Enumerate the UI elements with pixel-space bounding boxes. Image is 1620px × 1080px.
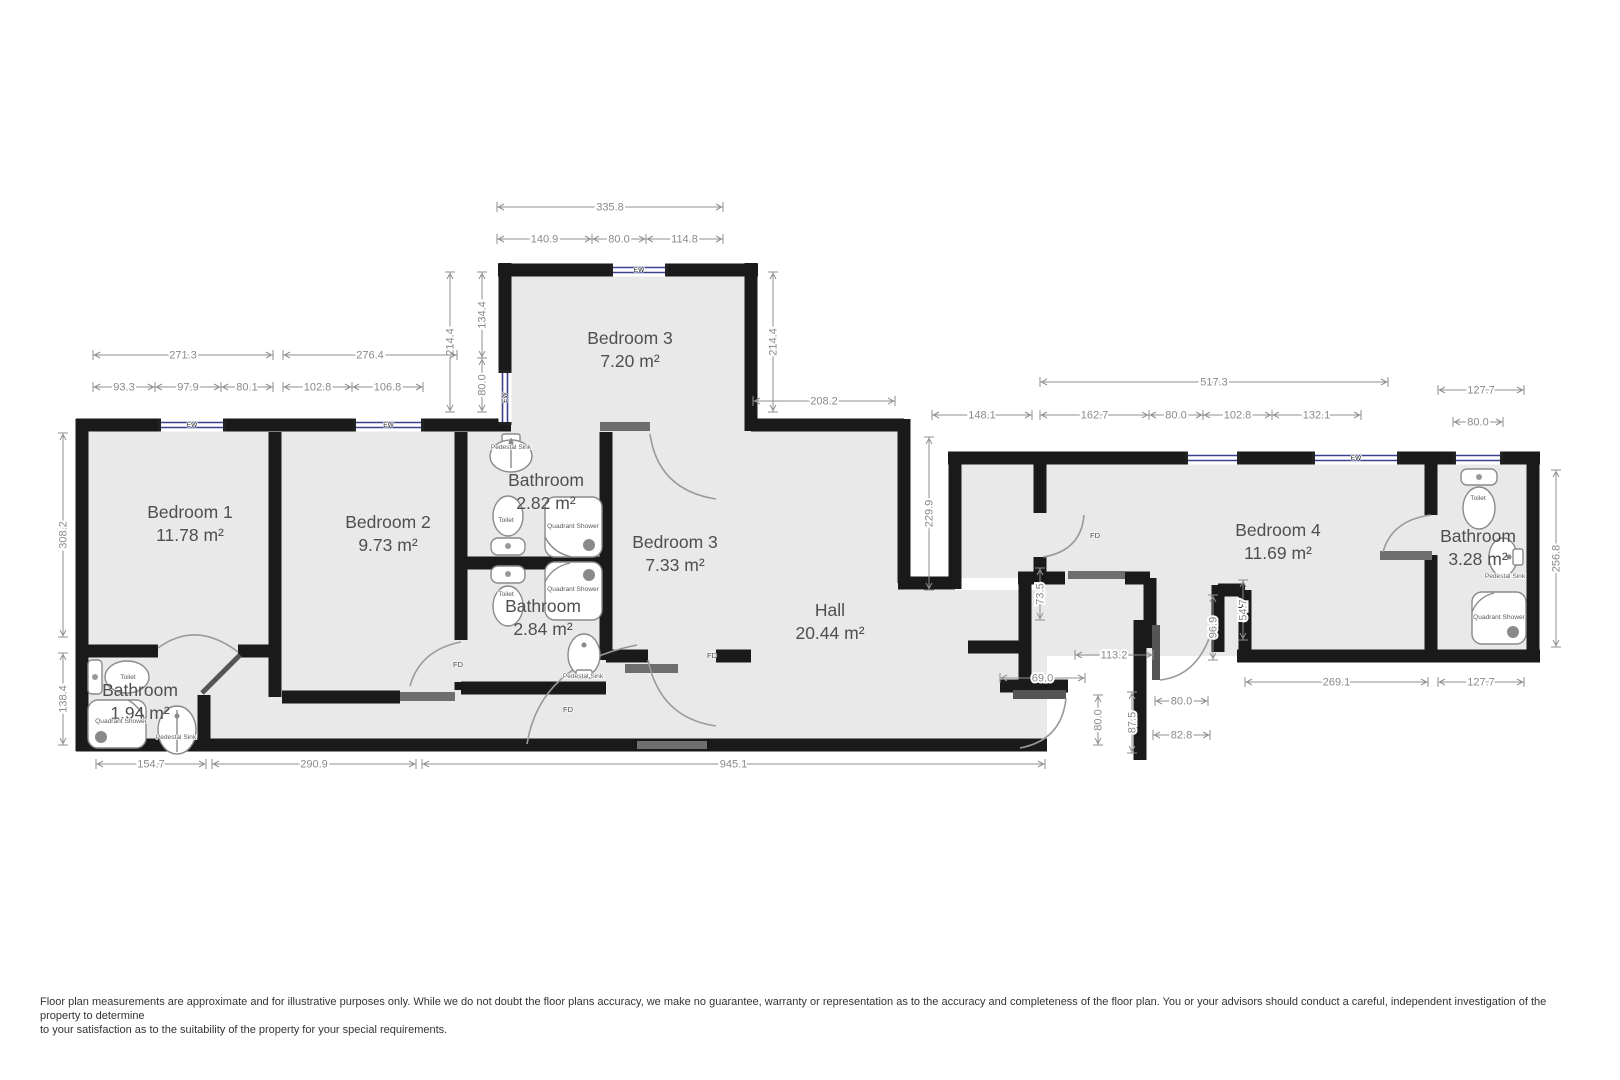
dimension-label: 82.8 bbox=[1171, 730, 1192, 742]
dimension: 290.9 bbox=[212, 759, 416, 771]
dimension: 80.1 bbox=[221, 382, 273, 394]
dimension: 276.4 bbox=[283, 350, 457, 362]
fixture-label: Pedestal Sink bbox=[563, 673, 604, 680]
window-opening bbox=[1453, 452, 1503, 465]
dimension: 82.8 bbox=[1153, 730, 1210, 742]
dimension-label: 96.9 bbox=[1208, 617, 1220, 638]
room-area: 2.82 m² bbox=[516, 493, 575, 513]
window-cap bbox=[499, 370, 512, 373]
dimension-label: 102.8 bbox=[304, 382, 332, 394]
window-cap bbox=[1453, 452, 1456, 465]
window-cap bbox=[1397, 452, 1400, 465]
dimension-label: 113.2 bbox=[1101, 650, 1128, 662]
dimension: 80.0 bbox=[477, 358, 489, 412]
dimension-label: 102.8 bbox=[1224, 410, 1252, 422]
window-label: EW bbox=[1351, 455, 1362, 462]
dimension-label: 80.1 bbox=[236, 382, 257, 394]
window-cap bbox=[1237, 452, 1240, 465]
dimension: 102.8 bbox=[283, 382, 352, 394]
dimension-label: 290.9 bbox=[300, 759, 328, 771]
fixture-label: Quadrant Shower bbox=[547, 586, 599, 593]
room-area: 3.28 m² bbox=[1448, 549, 1507, 569]
window-cap bbox=[499, 422, 512, 425]
door-label: FD bbox=[563, 705, 574, 714]
dimension-label: 80.0 bbox=[1467, 417, 1488, 429]
window-opening bbox=[1185, 452, 1240, 465]
window-cap bbox=[1500, 452, 1503, 465]
lintel bbox=[1380, 551, 1432, 560]
dimension-label: 308.2 bbox=[58, 521, 70, 549]
fixture-label: Quadrant Shower bbox=[547, 523, 599, 530]
window: EW bbox=[1312, 452, 1400, 465]
dimension-label: 140.9 bbox=[531, 234, 559, 246]
dimension-label: 127.7 bbox=[1467, 677, 1495, 689]
dimension-label: 256.8 bbox=[1551, 545, 1563, 573]
dimension-label: 80.0 bbox=[477, 374, 489, 395]
dimension-label: 114.8 bbox=[671, 234, 698, 246]
dimension: 308.2 bbox=[58, 433, 70, 637]
room-area: 2.84 m² bbox=[513, 619, 572, 639]
window-label: EW bbox=[634, 267, 645, 274]
dimension: 127.7 bbox=[1438, 677, 1524, 689]
room-name: Bedroom 1 bbox=[147, 502, 233, 522]
dimension-label: 127.7 bbox=[1467, 385, 1495, 397]
lintel bbox=[637, 741, 707, 749]
dimension-label: 69.0 bbox=[1032, 673, 1053, 685]
dimension-label: 214.4 bbox=[768, 328, 780, 356]
door-label: FD bbox=[453, 660, 464, 669]
dimension-label: 97.9 bbox=[177, 382, 198, 394]
fixture-label: Toilet bbox=[1470, 495, 1486, 502]
dimension-label: 54.7 bbox=[1238, 599, 1250, 620]
room-area: 11.69 m² bbox=[1244, 543, 1312, 563]
window: EW bbox=[353, 419, 424, 432]
window-cap bbox=[1312, 452, 1315, 465]
dimension: 162.7 bbox=[1040, 410, 1149, 422]
floor-plan-page: EWEWEWEWEW 335.8140.980.0114.8214.4134.4… bbox=[0, 0, 1620, 1080]
dimension-label: 945.1 bbox=[720, 759, 748, 771]
floor-plan: EWEWEWEWEW 335.8140.980.0114.8214.4134.4… bbox=[0, 0, 1620, 1080]
fixture-label: Pedestal Sink bbox=[156, 734, 197, 741]
dimension: 114.8 bbox=[646, 234, 723, 246]
dimension: 214.4 bbox=[768, 272, 780, 412]
door-label: FD bbox=[707, 651, 718, 660]
window-label: EW bbox=[187, 422, 198, 429]
lintel bbox=[600, 422, 650, 431]
door-label: FD bbox=[1090, 531, 1101, 540]
dimension-label: 271.3 bbox=[169, 350, 197, 362]
dimension: 138.4 bbox=[58, 653, 70, 745]
fixture-label: Quadrant Shower bbox=[95, 718, 147, 725]
dimension: 517.3 bbox=[1040, 377, 1388, 389]
dimension: 97.9 bbox=[155, 382, 221, 394]
lintel bbox=[400, 692, 455, 701]
room-area: 9.73 m² bbox=[358, 535, 417, 555]
room-name: Bedroom 2 bbox=[345, 512, 431, 532]
dimension-label: 106.8 bbox=[374, 382, 402, 394]
disclaimer: Floor plan measurements are approximate … bbox=[40, 995, 1546, 1037]
room-name: Bathroom bbox=[1440, 526, 1516, 546]
dimension: 229.9 bbox=[924, 437, 936, 590]
fixture-label: Toilet bbox=[498, 517, 514, 524]
dimension-label: 80.0 bbox=[1165, 410, 1186, 422]
room-name: Bathroom bbox=[102, 680, 178, 700]
window: EW bbox=[610, 264, 668, 277]
dimension: 80.0 bbox=[1453, 417, 1503, 429]
window-cap bbox=[665, 264, 668, 277]
disclaimer-line-3: to your satisfaction as to the suitabili… bbox=[40, 1023, 1546, 1037]
dimension-label: 80.0 bbox=[1093, 709, 1105, 730]
disclaimer-line-2: property to determine bbox=[40, 1009, 1546, 1023]
floor-fills bbox=[82, 270, 1533, 745]
dimension-label: 138.4 bbox=[58, 685, 70, 713]
window-cap bbox=[158, 419, 161, 432]
dimension: 102.8 bbox=[1203, 410, 1272, 422]
window bbox=[1185, 452, 1240, 465]
dimension-label: 229.9 bbox=[924, 500, 936, 528]
dimension: 208.2 bbox=[753, 396, 895, 408]
window: EW bbox=[158, 419, 226, 432]
dimension-label: 162.7 bbox=[1081, 410, 1109, 422]
dimension-label: 93.3 bbox=[113, 382, 134, 394]
dimension-label: 276.4 bbox=[356, 350, 384, 362]
dimension: 80.0 bbox=[592, 234, 646, 246]
room-name: Bedroom 4 bbox=[1235, 520, 1321, 540]
dimension-label: 335.8 bbox=[596, 202, 624, 214]
dimension-label: 154.7 bbox=[137, 759, 165, 771]
room-name: Bedroom 3 bbox=[587, 328, 673, 348]
room-name: Bedroom 3 bbox=[632, 532, 718, 552]
dimension: 106.8 bbox=[352, 382, 423, 394]
room-name: Bathroom bbox=[505, 596, 581, 616]
room-name: Bathroom bbox=[508, 470, 584, 490]
dimension: 127.7 bbox=[1438, 385, 1524, 397]
dimension-label: 87.5 bbox=[1127, 712, 1139, 733]
dimension-label: 214.4 bbox=[445, 328, 457, 356]
dimension: 93.3 bbox=[93, 382, 155, 394]
dimension: 80.0 bbox=[1149, 410, 1203, 422]
window-cap bbox=[223, 419, 226, 432]
dimension-label: 134.4 bbox=[477, 301, 489, 329]
room-area: 7.33 m² bbox=[645, 555, 704, 575]
fixture-label: Toilet bbox=[120, 674, 136, 681]
dimension-label: 132.1 bbox=[1303, 410, 1331, 422]
dimension: 335.8 bbox=[497, 202, 723, 214]
dimension: 80.0 bbox=[1155, 696, 1208, 708]
dimension: 154.7 bbox=[96, 759, 206, 771]
front-door-leaf bbox=[1013, 690, 1066, 699]
dimension-label: 517.3 bbox=[1200, 377, 1228, 389]
dimension: 214.4 bbox=[445, 272, 457, 412]
dimension: 271.3 bbox=[93, 350, 273, 362]
window bbox=[1453, 452, 1503, 465]
dimension: 256.8 bbox=[1551, 470, 1563, 647]
dimension-label: 208.2 bbox=[810, 396, 838, 408]
dimension: 269.1 bbox=[1245, 677, 1428, 689]
disclaimer-line-1: Floor plan measurements are approximate … bbox=[40, 995, 1546, 1009]
window-cap bbox=[1185, 452, 1188, 465]
window-cap bbox=[421, 419, 424, 432]
window-cap bbox=[353, 419, 356, 432]
dimension: 148.1 bbox=[932, 410, 1032, 422]
dimension: 140.9 bbox=[497, 234, 592, 246]
dimension-label: 80.0 bbox=[1171, 696, 1192, 708]
lintel bbox=[1068, 571, 1125, 579]
dimension: 945.1 bbox=[422, 759, 1045, 771]
dimension: 132.1 bbox=[1272, 410, 1361, 422]
dimension-label: 269.1 bbox=[1323, 677, 1351, 689]
window: EW bbox=[499, 370, 512, 425]
room-area: 20.44 m² bbox=[795, 623, 864, 643]
window-label: EW bbox=[502, 391, 509, 402]
dimension: 134.4 bbox=[477, 272, 489, 358]
dimension-label: 80.0 bbox=[608, 234, 629, 246]
room-area: 7.20 m² bbox=[600, 351, 659, 371]
fixture-label: Pedestal Sink bbox=[1485, 573, 1526, 580]
fixture-label: Toilet bbox=[498, 591, 514, 598]
window-label: EW bbox=[383, 422, 394, 429]
fixture-label: Pedestal Sink bbox=[491, 444, 532, 451]
window-cap bbox=[610, 264, 613, 277]
room-area: 11.78 m² bbox=[156, 525, 224, 545]
dimension-label: 73.5 bbox=[1035, 583, 1047, 604]
dimension: 80.0 bbox=[1093, 695, 1105, 745]
dimension-label: 148.1 bbox=[968, 410, 996, 422]
room-name: Hall bbox=[815, 600, 845, 620]
fixture-label: Quadrant Shower bbox=[1473, 614, 1525, 621]
